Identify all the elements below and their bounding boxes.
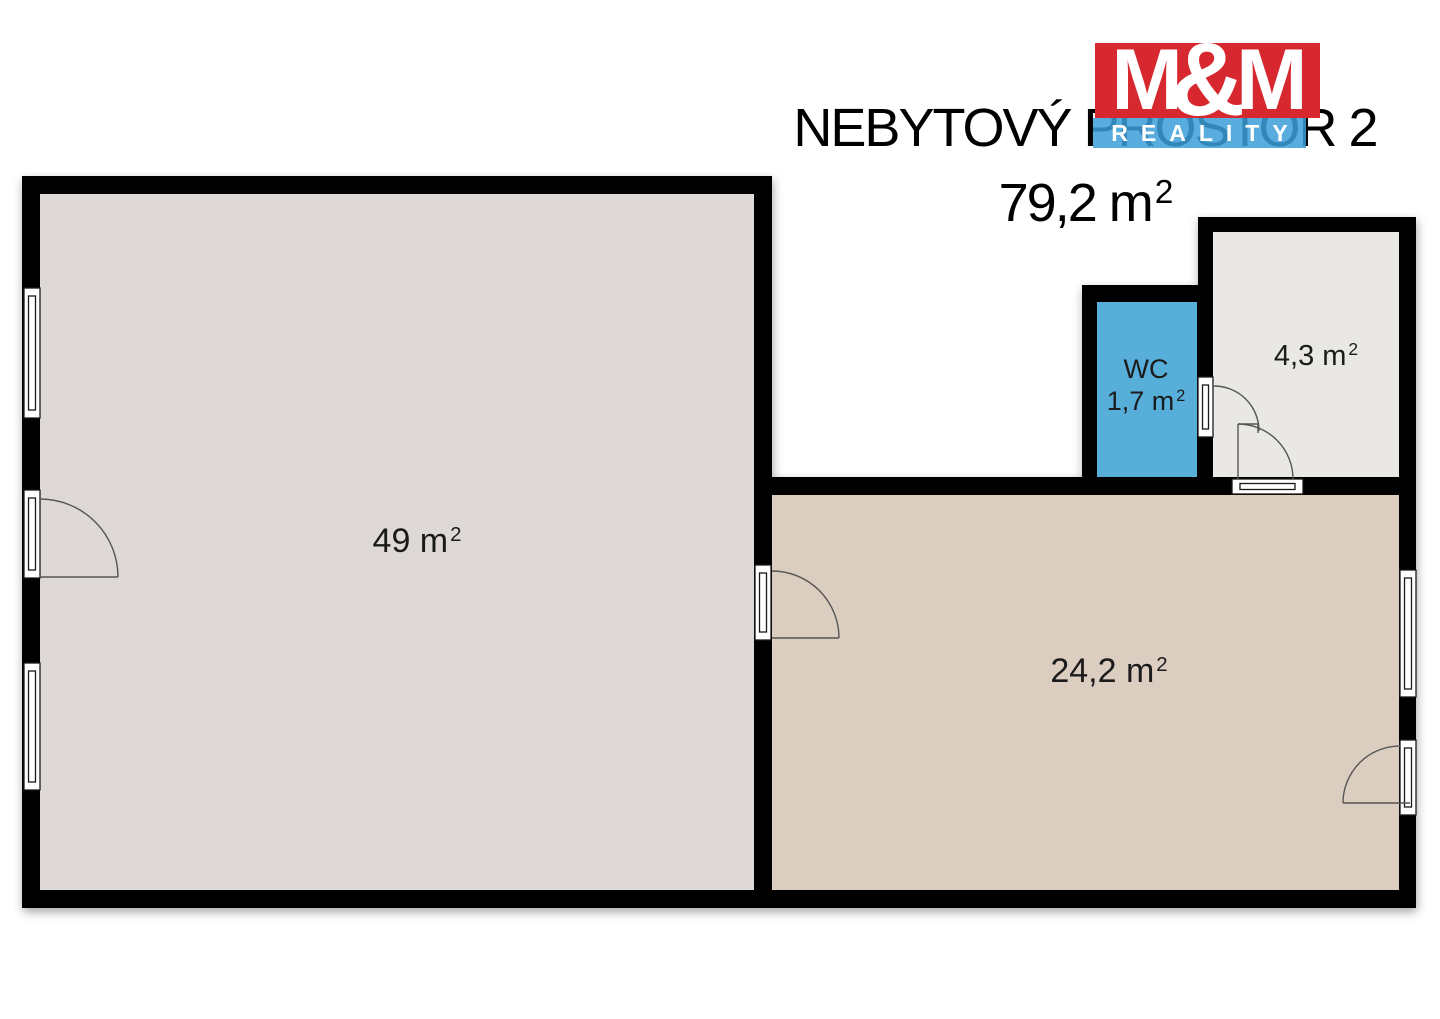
logo-letter-m-left: M (1111, 43, 1179, 118)
room-area-annex: 24,2 m (1050, 652, 1154, 690)
room-area-small: 4,3 m (1274, 340, 1347, 372)
wc-name: WC (1107, 354, 1186, 386)
room-label-main: 49 m2 (373, 521, 462, 561)
room-area-small-sup: 2 (1348, 339, 1358, 359)
wc-area-sup: 2 (1176, 387, 1185, 405)
room-area-main-sup: 2 (450, 524, 461, 546)
window (24, 288, 40, 418)
room-area-main: 49 m (373, 522, 449, 560)
window (1400, 570, 1416, 697)
room-label-annex: 24,2 m2 (1050, 651, 1167, 691)
logo-ampersand: & (1170, 43, 1245, 118)
logo-letter-m-right: M (1236, 43, 1304, 118)
mm-reality-logo: M & M REALITY (1095, 43, 1320, 148)
wc-area: 1,7 m (1107, 386, 1175, 416)
plan-title-area-value: 79,2 m (999, 173, 1152, 233)
room-label-small: 4,3 m2 (1274, 339, 1358, 373)
window (24, 663, 40, 790)
room-area-annex-sup: 2 (1156, 654, 1167, 676)
floor-annex-room (772, 495, 1399, 890)
logo-red-box: M & M (1095, 43, 1320, 118)
floorplan-page: 49 m2 24,2 m2 4,3 m2 WC 1,7 m2 NEBYTOVÝ … (0, 0, 1440, 1019)
plan-title-area: 79,2 m2 (793, 176, 1376, 238)
room-label-wc: WC 1,7 m2 (1107, 354, 1186, 418)
plan-title-area-sup: 2 (1155, 174, 1172, 211)
